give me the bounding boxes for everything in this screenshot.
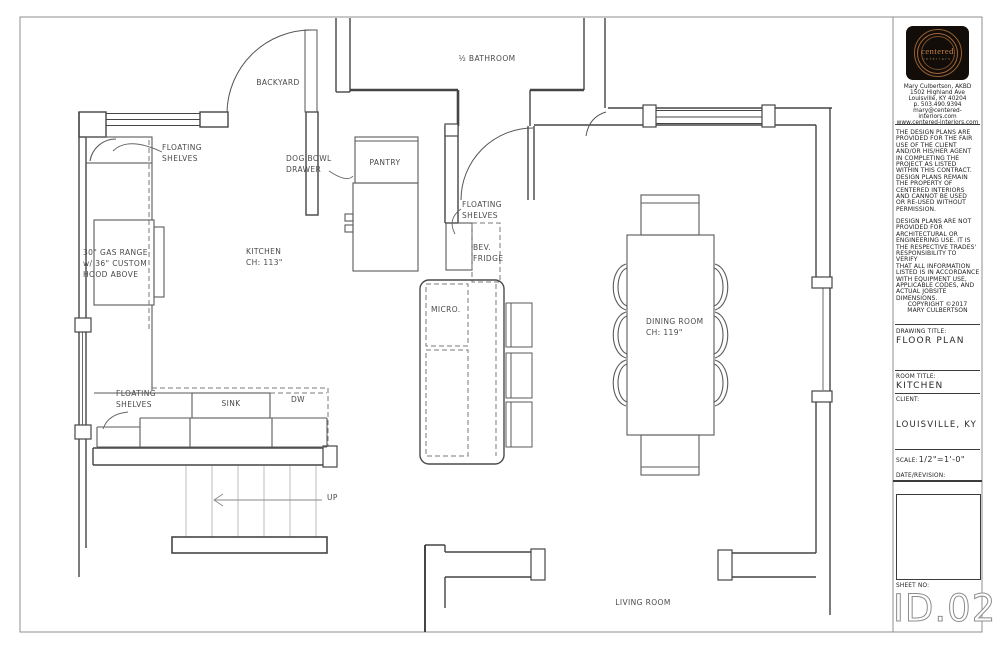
- designer-contact-info: Mary Culbertson, AKBD 1502 Highland Ave …: [895, 84, 980, 127]
- stair-landing-wall: [172, 537, 327, 553]
- bar-stools: [506, 303, 532, 447]
- hall-door-swing: [586, 112, 606, 136]
- bathroom-door-swing: [461, 128, 533, 200]
- fridge-handle: [345, 225, 353, 232]
- date-revision-label: DATE/REVISION:: [896, 473, 945, 479]
- divider: [895, 124, 980, 125]
- divider: [895, 324, 980, 325]
- drawing-sheet: BACKYARD ½ BATHROOM FLOATING SHELVES DOG…: [0, 0, 1000, 654]
- drawing-title-label: DRAWING TITLE:: [896, 329, 946, 335]
- dining-chair-north: [641, 195, 699, 235]
- scale-label: SCALE:: [896, 458, 918, 464]
- page-border: [20, 17, 982, 632]
- logo-brand: centered: [921, 46, 954, 56]
- scale-row: SCALE: 1/2"=1'-0": [896, 455, 965, 464]
- microwave-label: MICRO.: [431, 305, 461, 316]
- up-direction-arrow: [214, 494, 322, 506]
- dog-bowl-drawer-label: DOG BOWL DRAWER: [286, 154, 332, 176]
- disclaimer-fair-use: THE DESIGN PLANS ARE PROVIDED FOR THE FA…: [896, 130, 980, 213]
- leader-lines: [103, 144, 461, 429]
- sink-label: SINK: [196, 399, 266, 410]
- room-title: KITCHEN: [896, 381, 943, 391]
- dining-room-label: DINING ROOM CH: 119": [646, 317, 704, 339]
- window-sills: [75, 105, 832, 580]
- floor-plan-drawing: [0, 0, 1000, 654]
- backyard-label: BACKYARD: [240, 78, 316, 89]
- client-label: CLIENT:: [896, 397, 919, 403]
- sheet-number: ID.02: [893, 590, 996, 627]
- doors: [227, 30, 606, 200]
- divider: [895, 370, 980, 371]
- kitchen-room-label: KITCHEN CH: 113": [246, 247, 283, 269]
- pantry-label: PANTRY: [352, 158, 418, 169]
- dining-chair-south: [641, 435, 699, 475]
- island-cabinet-dashed: [426, 350, 468, 456]
- stairs: [172, 466, 327, 553]
- bathroom-label: ½ BATHROOM: [437, 54, 537, 65]
- living-room-label: LIVING ROOM: [598, 598, 688, 609]
- company-logo: centered interiors: [906, 26, 969, 80]
- corner-cabinet: [86, 137, 152, 163]
- scale-value: 1/2"=1'-0": [919, 455, 965, 464]
- bev-fridge-counter: [446, 223, 472, 270]
- bev-fridge-label: BEV. FRIDGE: [473, 243, 503, 265]
- gas-range-label: 30" GAS RANGE w/ 36" CUSTOM HOOD ABOVE: [83, 248, 148, 281]
- backyard-door-swing: [227, 30, 311, 112]
- logo-text: centered interiors: [921, 46, 954, 61]
- logo-sub: interiors: [921, 57, 954, 61]
- floating-shelves-top-label: FLOATING SHELVES: [162, 143, 202, 165]
- corner-cabinet-door: [90, 139, 116, 161]
- up-label: UP: [327, 493, 338, 504]
- revision-box: [896, 494, 981, 580]
- copyright-notice: COPYRIGHT ©2017 MARY CULBERTSON: [895, 302, 980, 315]
- divider: [893, 480, 982, 482]
- walls: [79, 18, 832, 632]
- room-title-label: ROOM TITLE:: [896, 374, 936, 380]
- divider: [895, 393, 980, 394]
- floating-shelves-mid-label: FLOATING SHELVES: [462, 200, 502, 222]
- client-name: LOUISVILLE, KY: [896, 420, 977, 430]
- divider: [895, 449, 980, 450]
- floating-shelves-bottom-label: FLOATING SHELVES: [116, 389, 156, 411]
- fridge-handle: [345, 214, 353, 221]
- refrigerator: [353, 183, 418, 271]
- disclaimer-not-engineering: DESIGN PLANS ARE NOT PROVIDED FOR ARCHIT…: [896, 219, 980, 302]
- drawing-title: FLOOR PLAN: [896, 336, 965, 346]
- backyard-door-leaf: [305, 30, 317, 112]
- range-handle: [154, 227, 164, 297]
- dishwasher-label: DW: [291, 395, 305, 406]
